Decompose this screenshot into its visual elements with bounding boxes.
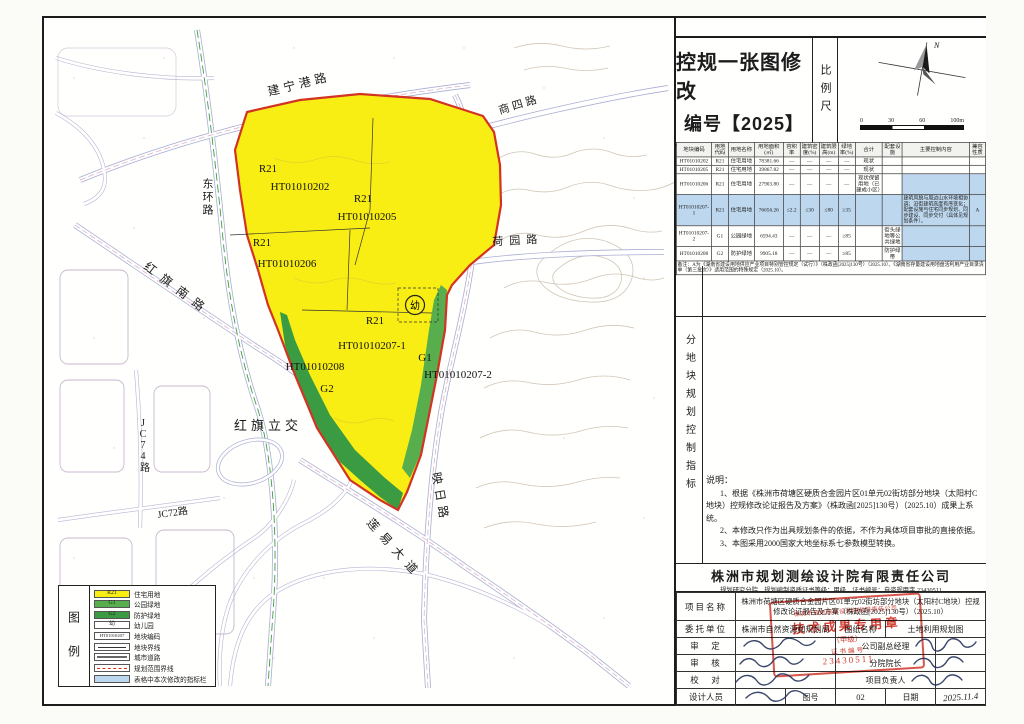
project-name-value: 株洲市荷塘区硬质合金园片区01单元02街坊部分地块（太阳村C地块）控规修改论证报… xyxy=(736,593,986,621)
indicator-cell: 街头绿地等公共绿地 xyxy=(882,226,902,247)
interchange-label: 红旗立交 xyxy=(234,418,302,433)
approve-role: 公司副总经理 xyxy=(836,638,936,655)
indicator-cell xyxy=(902,246,969,261)
indicator-cell xyxy=(969,226,985,247)
designer-label: 设计人员 xyxy=(677,689,736,706)
indicator-cell: — xyxy=(819,174,838,195)
indicator-cell: — xyxy=(783,165,800,173)
legend-item: 规划范围界线 xyxy=(94,663,211,672)
indicator-header: 用地名称 xyxy=(728,142,754,157)
scale-tick: 0 xyxy=(860,118,863,124)
indicator-cell: G1 xyxy=(712,226,729,247)
indicator-cell: — xyxy=(783,174,800,195)
scale-tick: 60 xyxy=(919,118,925,124)
note-item: 3、本图采用2000国家大地坐标系七参数模型转换。 xyxy=(706,538,980,550)
legend-item: G2防护绿地 xyxy=(94,610,211,619)
indicator-cell: 住宅用地 xyxy=(728,195,754,226)
company-block: 株洲市规划测绘设计院有限责任公司 规划研究分院 规划编制资质证书等级：甲级 证书… xyxy=(676,563,986,592)
review-label: 审 核 xyxy=(677,655,736,672)
indicator-cell xyxy=(882,174,902,195)
plot-label-202: HT01010202 xyxy=(271,181,330,193)
figure-no-value: 02 xyxy=(836,689,886,706)
legend-item-label: 地块编码 xyxy=(134,631,160,641)
plot-label-g2: G2 xyxy=(320,383,333,395)
indicator-cell: 9905.18 xyxy=(754,246,783,261)
legend-item-label: 防护绿地 xyxy=(134,610,160,620)
proof-signature2-cell xyxy=(936,672,986,689)
review-signature2-cell xyxy=(936,655,986,672)
proof-role: 项目负责人 xyxy=(836,672,936,689)
indicator-row: HT01010202R21住宅用地78381.66————现状 xyxy=(676,157,985,165)
indicator-cell: R21 xyxy=(712,195,729,226)
indicator-header: 兼容性质 xyxy=(969,142,985,157)
date-label: 日期 xyxy=(886,689,936,706)
sheet-name-label: 图纸名称 xyxy=(836,621,886,638)
legend-swatch-road xyxy=(94,653,130,661)
legend-swatch-code: HT01010207 xyxy=(94,632,130,640)
scale-label: 比例尺 xyxy=(817,64,833,118)
indicator-header: 容积率 xyxy=(783,142,800,157)
indicator-header: 主要控制内容 xyxy=(902,142,969,157)
indicator-row: HT01010208G2防护绿地9905.18———≥85防护绿带 xyxy=(676,246,985,261)
indicator-cell: 现状保留用地（已建成小区） xyxy=(855,174,882,195)
road-label-jc74: JC74路 xyxy=(138,418,150,473)
indicator-header: 用地面积(㎡) xyxy=(754,142,783,157)
indicator-cell xyxy=(882,195,902,226)
review-signature-cell xyxy=(736,655,836,672)
title-panel: 控规一张图修改 编号【2025】 比例尺 N xyxy=(674,18,986,704)
indicator-cell: ≤80 xyxy=(819,195,838,226)
sheet-title-line1: 控规一张图修改 xyxy=(676,46,812,104)
indicator-cell xyxy=(902,157,969,165)
approve-signature-cell xyxy=(736,638,836,655)
indicator-cell: 公园绿地 xyxy=(728,226,754,247)
plot-label-205: HT01010205 xyxy=(338,211,397,223)
note-item: 1、根据《株洲市荷塘区硬质合金园片区01单元02街坊部分地块（太阳村C地块）控规… xyxy=(706,488,980,525)
residential-area-r21 xyxy=(235,94,501,510)
client-label: 委托单位 xyxy=(677,621,736,638)
indicator-cell: ≥85 xyxy=(838,246,855,261)
north-arrow-icon: N xyxy=(838,38,986,102)
indicator-cell: ≥35 xyxy=(838,195,855,226)
indicator-cell xyxy=(855,226,882,247)
legend-items: R21住宅用地G1公园绿地G2防护绿地幼幼儿园HT01010207地块编码地块界… xyxy=(90,586,215,686)
indicator-cell: — xyxy=(800,157,819,165)
indicator-cell: — xyxy=(819,165,838,173)
plot-label-r21-a: R21 xyxy=(259,163,277,175)
scale-tick: 30 xyxy=(888,118,894,124)
section-label-strip: 分地块规划控制指标 xyxy=(676,266,703,563)
legend-title-text: 图例 xyxy=(66,593,83,679)
indicator-cell: HT01010205 xyxy=(676,165,711,173)
indicator-cell: — xyxy=(819,157,838,165)
review-role: 分院院长 xyxy=(836,655,936,672)
plan-sheet: 幼 建宁港路 商四路 东环路 红旗南路 荷园路 红旗立交 JC74路 JC72路… xyxy=(42,16,986,706)
indicator-cell: — xyxy=(819,226,838,247)
indicator-table: 地块编码用地代码用地名称用地面积(㎡)容积率建筑密度(%)建筑限高(m)绿地率(… xyxy=(676,142,986,275)
scale-label-cell: 比例尺 xyxy=(813,38,838,144)
kindergarten-symbol: 幼 xyxy=(406,296,425,315)
indicator-cell xyxy=(969,157,985,165)
indicator-cell: 住宅用地 xyxy=(728,174,754,195)
legend-item-label: 地块界线 xyxy=(134,642,160,652)
legend-item-label: 幼儿园 xyxy=(134,620,154,630)
sheet-name-value: 土地利用规划图 xyxy=(886,621,986,638)
road-label-jianning: 建宁港路 xyxy=(266,69,332,99)
indicator-cell: ≤2.2 xyxy=(783,195,800,226)
indicator-header: 建筑密度(%) xyxy=(800,142,819,157)
info-table: 项目名称 株洲市荷塘区硬质合金园片区01单元02街坊部分地块（太阳村C地块）控规… xyxy=(676,592,986,706)
proof-signature-cell xyxy=(736,672,836,689)
legend-swatch-plot-line xyxy=(94,643,130,651)
indicator-cell xyxy=(902,165,969,173)
indicator-cell: — xyxy=(800,246,819,261)
legend-item-label: 公园绿地 xyxy=(134,599,160,609)
legend-item: 幼幼儿园 xyxy=(94,621,211,630)
indicator-table-wrap: 地块编码用地代码用地名称用地面积(㎡)容积率建筑密度(%)建筑限高(m)绿地率(… xyxy=(676,142,986,317)
legend-item-label: 住宅用地 xyxy=(134,589,160,599)
legend-title: 图例 xyxy=(59,586,90,686)
title-block: 控规一张图修改 编号【2025】 比例尺 N xyxy=(676,36,986,146)
indicator-cell: HT01010202 xyxy=(676,157,711,165)
legend-item: 城市道路 xyxy=(94,653,211,662)
indicator-cell: 防护绿带 xyxy=(882,246,902,261)
svg-text:幼: 幼 xyxy=(410,299,420,312)
road-label-hongqinan: 红旗南路 xyxy=(141,258,214,318)
indicator-cell: HT01010206 xyxy=(676,174,711,195)
indicator-row: HT01010205R21住宅用地39867.82————现状 xyxy=(676,165,985,173)
indicator-cell: HT01010207-1 xyxy=(676,195,711,226)
legend-item: R21住宅用地 xyxy=(94,589,211,598)
notes-heading: 说明： xyxy=(706,474,980,488)
indicator-cell: G2 xyxy=(712,246,729,261)
road-label-heyuan: 荷园路 xyxy=(492,233,544,249)
indicator-cell xyxy=(902,174,969,195)
north-scale-cell: N 0 30 60 100m xyxy=(838,38,986,144)
indicator-cell: — xyxy=(800,226,819,247)
indicator-cell: — xyxy=(800,174,819,195)
indicator-footnote: 备注：A为《湖南省建设用地供应产业项目特别管控规定（试行）》（株政函[2025]… xyxy=(676,261,985,275)
client-value: 株洲市自然资源和规划局 xyxy=(736,621,836,638)
indicator-cell: — xyxy=(819,246,838,261)
indicator-cell: — xyxy=(783,157,800,165)
indicator-cell: 现状 xyxy=(855,165,882,173)
plot-label-208: HT01010208 xyxy=(286,361,345,373)
indicator-header: 建筑限高(m) xyxy=(819,142,838,157)
proof-label: 校 对 xyxy=(677,672,736,689)
indicator-cell: R21 xyxy=(712,174,729,195)
scale-bar: 0 30 60 100m xyxy=(860,118,964,131)
plot-label-207-2: HT01010207-2 xyxy=(424,369,492,381)
approve-signature2-cell xyxy=(936,638,986,655)
indicator-cell: A xyxy=(969,195,985,226)
indicator-cell xyxy=(969,174,985,195)
indicator-header: 地块编码 xyxy=(676,142,711,157)
figure-no-label: 图号 xyxy=(786,689,836,706)
indicator-cell xyxy=(855,195,882,226)
contour-lines xyxy=(476,43,678,528)
legend-swatch-g1: G1 xyxy=(94,600,130,608)
plot-label-206: HT01010206 xyxy=(258,258,317,270)
indicator-cell: — xyxy=(783,246,800,261)
indicator-cell: R21 xyxy=(712,157,729,165)
plot-label-r21-b: R21 xyxy=(354,193,372,205)
info-table-wrap: 项目名称 株洲市荷塘区硬质合金园片区01单元02街坊部分地块（太阳村C地块）控规… xyxy=(676,591,986,705)
note-item: 2、本修改只作为出具规划条件的依据，不作为具体项目审批的直接依据。 xyxy=(706,525,980,537)
plot-label-g1: G1 xyxy=(418,352,431,364)
approve-label: 审 定 xyxy=(677,638,736,655)
section-label: 分地块规划控制指标 xyxy=(682,334,697,496)
sheet-title: 控规一张图修改 编号【2025】 xyxy=(676,38,813,144)
plot-label-r21-c: R21 xyxy=(253,237,271,249)
indicator-cell: 住宅用地 xyxy=(728,157,754,165)
legend-item: 地块界线 xyxy=(94,642,211,651)
indicator-cell: 76656.26 xyxy=(754,195,783,226)
indicator-cell: ≥85 xyxy=(838,226,855,247)
indicator-cell xyxy=(902,226,969,247)
indicator-cell: — xyxy=(783,226,800,247)
indicator-cell xyxy=(882,165,902,173)
legend-item-label: 表格中本次修改的指标栏 xyxy=(134,674,207,684)
date-value: 2025.11.4 xyxy=(936,689,986,706)
indicator-cell: — xyxy=(838,157,855,165)
indicator-cell: 现状 xyxy=(855,157,882,165)
indicator-cell: HT01010207-2 xyxy=(676,226,711,247)
road-label-donghuan: 东环路 xyxy=(201,178,214,217)
indicator-cell: 39867.82 xyxy=(754,165,783,173)
indicator-row: HT01010207-2G1公园绿地6594.43———≥85街头绿地等公共绿地 xyxy=(676,226,985,247)
indicator-cell: 住宅用地 xyxy=(728,165,754,173)
indicator-header: 用地代码 xyxy=(712,142,729,157)
legend-swatch-g2: G2 xyxy=(94,611,130,619)
legend-swatch-modified xyxy=(94,675,130,683)
notes-block: 说明： 1、根据《株洲市荷塘区硬质合金园片区01单元02街坊部分地块（太阳村C地… xyxy=(706,474,980,550)
indicator-header: 绿地率(%) xyxy=(838,142,855,157)
legend-item: 表格中本次修改的指标栏 xyxy=(94,674,211,683)
indicator-cell xyxy=(969,165,985,173)
sheet-title-line2: 编号【2025】 xyxy=(684,110,804,136)
scale-tick: 100m xyxy=(950,118,964,124)
legend-swatch-plan-line xyxy=(94,664,130,672)
legend-item-label: 城市道路 xyxy=(134,652,160,662)
company-name: 株洲市规划测绘设计院有限责任公司 xyxy=(676,566,986,585)
indicator-cell: 建筑风貌与周边山水环境相协调；沿街建筑高度有序变化；配套设施与住宅同步规划、同步… xyxy=(902,195,969,226)
legend-item-label: 规划范围界线 xyxy=(134,663,174,673)
scale-bar-graphic xyxy=(860,125,964,131)
indicator-cell: — xyxy=(838,165,855,173)
project-name-label: 项目名称 xyxy=(677,593,736,621)
indicator-cell: 78381.66 xyxy=(754,157,783,165)
indicator-cell: HT01010208 xyxy=(676,246,711,261)
indicator-header: 配套设施 xyxy=(882,142,902,157)
indicator-row: HT01010206R21住宅用地27903.80————现状保留用地（已建成小… xyxy=(676,174,985,195)
indicator-cell xyxy=(855,246,882,261)
interchange-loop xyxy=(212,432,288,492)
legend-swatch-kinder: 幼 xyxy=(94,621,130,629)
svg-text:N: N xyxy=(933,41,940,50)
legend-item: HT01010207地块编码 xyxy=(94,632,211,641)
indicator-cell: 27903.80 xyxy=(754,174,783,195)
indicator-row: HT01010207-1R21住宅用地76656.26≤2.2≤30≤80≥35… xyxy=(676,195,985,226)
indicator-cell: — xyxy=(838,174,855,195)
indicator-cell: 6594.43 xyxy=(754,226,783,247)
legend-swatch-r21: R21 xyxy=(94,590,130,598)
indicator-cell: — xyxy=(800,165,819,173)
indicator-cell: ≤30 xyxy=(800,195,819,226)
legend-item: G1公园绿地 xyxy=(94,600,211,609)
designer-signature-cell xyxy=(736,689,786,706)
plot-label-207-1: HT01010207-1 xyxy=(338,340,406,352)
legend: 图例 R21住宅用地G1公园绿地G2防护绿地幼幼儿园HT01010207地块编码… xyxy=(58,585,216,687)
indicator-cell: 防护绿地 xyxy=(728,246,754,261)
indicator-cell: R21 xyxy=(712,165,729,173)
indicator-cell xyxy=(882,157,902,165)
indicator-cell xyxy=(969,246,985,261)
plot-label-r21-d: R21 xyxy=(366,315,384,327)
indicator-header: 合计 xyxy=(855,142,882,157)
